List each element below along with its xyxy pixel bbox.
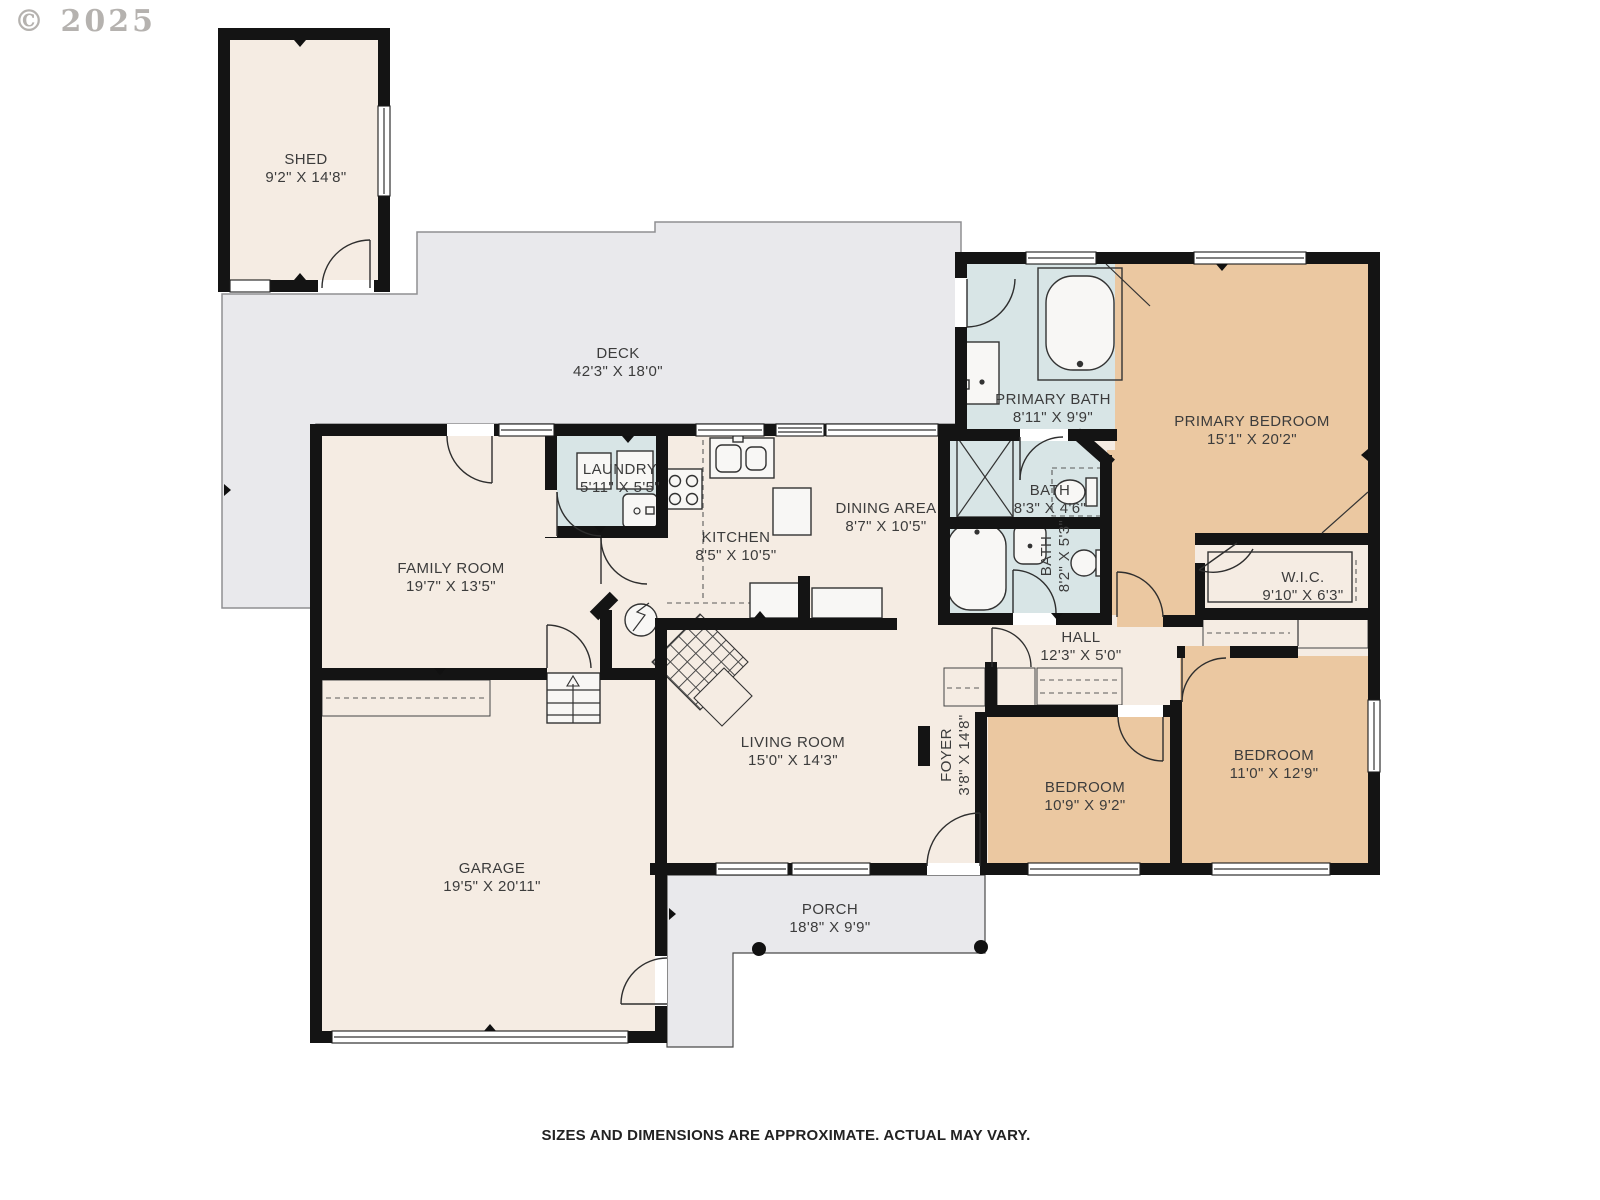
- room-label-kitchen: KITCHEN8'5" X 10'5": [695, 529, 776, 565]
- room-name: BEDROOM: [1230, 747, 1319, 765]
- room-label-living-room: LIVING ROOM15'0" X 14'3": [741, 734, 845, 770]
- room-label-bath-upper: BATH8'3" X 4'6": [1014, 482, 1087, 518]
- copyright-watermark: © 2025: [14, 4, 156, 39]
- room-dimensions: 9'10" X 6'3": [1262, 587, 1343, 605]
- room-name: DINING AREA: [835, 500, 936, 518]
- floor-plan-page: SHED9'2" X 14'8"DECK42'3" X 18'0"FAMILY …: [0, 0, 1600, 1200]
- room-label-bedroom-left: BEDROOM10'9" X 9'2": [1044, 779, 1125, 815]
- room-dimensions: 8'11" X 9'9": [995, 409, 1111, 427]
- room-dimensions: 5'11" X 5'5": [580, 479, 660, 497]
- room-name: PORCH: [789, 901, 870, 919]
- room-dimensions: 11'0" X 12'9": [1230, 765, 1319, 783]
- room-name: BATH: [1014, 482, 1087, 500]
- room-label-bedroom-right: BEDROOM11'0" X 12'9": [1230, 747, 1319, 783]
- room-name: PRIMARY BATH: [995, 391, 1111, 409]
- toilet-icon: [1071, 550, 1097, 576]
- room-dimensions: 15'0" X 14'3": [741, 752, 845, 770]
- room-name: LIVING ROOM: [741, 734, 845, 752]
- room-dimensions: 8'2" X 5'3": [1056, 520, 1074, 593]
- room-name: BEDROOM: [1044, 779, 1125, 797]
- stairs: [547, 673, 600, 723]
- room-label-laundry: LAUNDRY5'11" X 5'5": [580, 461, 660, 497]
- room-name: GARAGE: [443, 860, 541, 878]
- room-dimensions: 8'5" X 10'5": [695, 547, 776, 565]
- room-label-porch: PORCH18'8" X 9'9": [789, 901, 870, 937]
- room-name: W.I.C.: [1262, 569, 1343, 587]
- primary-vanity-icon: [965, 342, 999, 404]
- room-label-wic: W.I.C.9'10" X 6'3": [1262, 569, 1343, 605]
- room-name: HALL: [1040, 629, 1121, 647]
- room-dimensions: 19'7" X 13'5": [397, 578, 504, 596]
- room-dimensions: 42'3" X 18'0": [573, 363, 663, 381]
- room-name: KITCHEN: [695, 529, 776, 547]
- room-label-shed: SHED9'2" X 14'8": [265, 151, 346, 187]
- porch-post: [974, 940, 988, 954]
- room-dimensions: 8'7" X 10'5": [835, 518, 936, 536]
- room-name: LAUNDRY: [580, 461, 660, 479]
- tub-icon: [948, 524, 1006, 610]
- room-label-hall: HALL12'3" X 5'0": [1040, 629, 1121, 665]
- fridge-icon: [773, 488, 811, 535]
- room-label-bath-lower: BATH8'2" X 5'3": [1038, 520, 1074, 593]
- room-label-dining-area: DINING AREA8'7" X 10'5": [835, 500, 936, 536]
- floor-plan-drawing: [0, 0, 1600, 1200]
- room-label-deck: DECK42'3" X 18'0": [573, 345, 663, 381]
- room-dimensions: 8'3" X 4'6": [1014, 500, 1087, 518]
- room-dimensions: 15'1" X 20'2": [1174, 431, 1329, 449]
- room-dimensions: 3'8" X 14'8": [956, 714, 974, 795]
- room-name: BATH: [1038, 520, 1056, 593]
- room-label-family-room: FAMILY ROOM19'7" X 13'5": [397, 560, 504, 596]
- room-dimensions: 10'9" X 9'2": [1044, 797, 1125, 815]
- room-label-garage: GARAGE19'5" X 20'11": [443, 860, 541, 896]
- room-name: PRIMARY BEDROOM: [1174, 413, 1329, 431]
- room-label-primary-bath: PRIMARY BATH8'11" X 9'9": [995, 391, 1111, 427]
- room-dimensions: 12'3" X 5'0": [1040, 647, 1121, 665]
- room-name: FAMILY ROOM: [397, 560, 504, 578]
- room-name: FOYER: [938, 714, 956, 795]
- room-dimensions: 9'2" X 14'8": [265, 169, 346, 187]
- room-label-foyer: FOYER3'8" X 14'8": [938, 714, 974, 795]
- room-name: DECK: [573, 345, 663, 363]
- room-dimensions: 18'8" X 9'9": [789, 919, 870, 937]
- room-dimensions: 19'5" X 20'11": [443, 878, 541, 896]
- room-name: SHED: [265, 151, 346, 169]
- disclaimer-text: SIZES AND DIMENSIONS ARE APPROXIMATE. AC…: [542, 1127, 1031, 1144]
- room-label-primary-bedroom: PRIMARY BEDROOM15'1" X 20'2": [1174, 413, 1329, 449]
- porch-post: [752, 942, 766, 956]
